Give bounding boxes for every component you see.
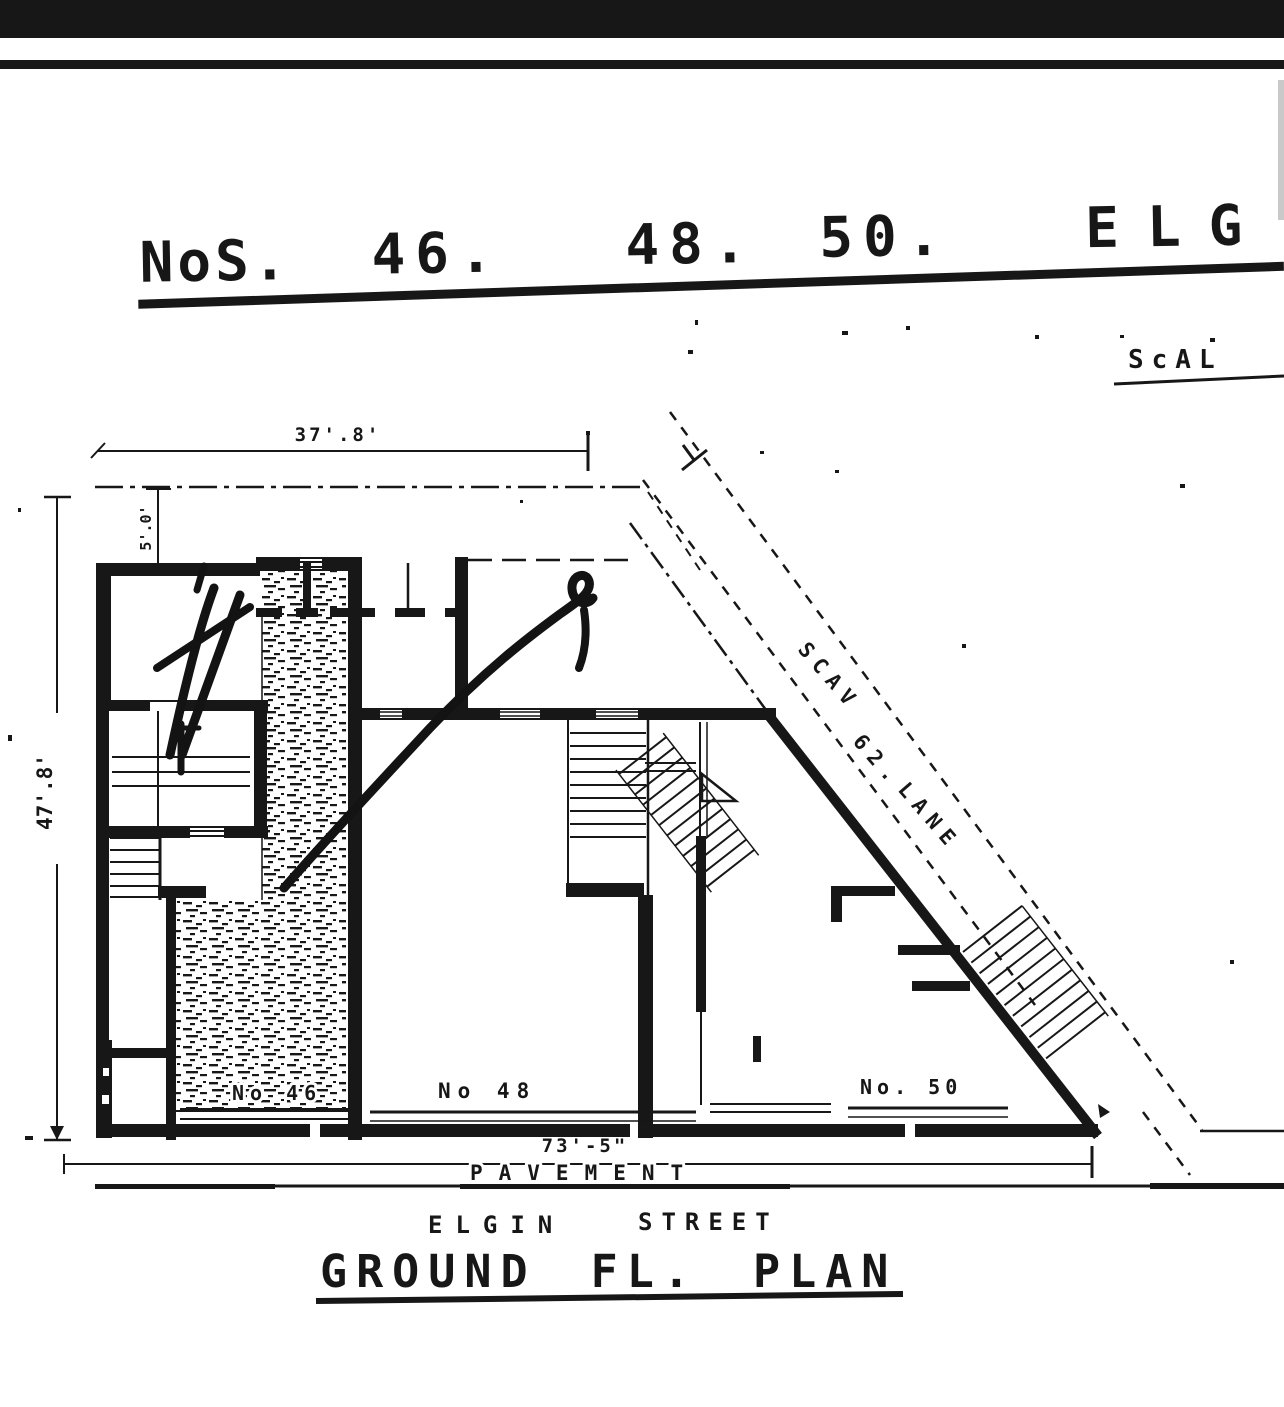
house-50-label: No. 50 [860,1075,962,1099]
scan-edge-top-line [0,60,1284,69]
lane-dimension-tick [682,445,707,470]
lane-scav-62: SCAV 62. LANE [643,412,1284,1175]
party-wall-46-48 [348,557,362,1140]
pen-curve-tail [579,610,586,668]
title-number-50: 50. [819,204,951,271]
stair-direction-arrow [1098,1104,1110,1118]
front-wall [96,1124,1098,1137]
house-46-label: No 46 [232,1081,322,1105]
scanned-plan-page: NoS. 46. 48. 50. ELG ScAL 37'.8' 5'.0' 4… [0,0,1284,1407]
pavement-label: PAVEMENT [470,1161,699,1185]
house-48-label: No 48 [438,1079,536,1103]
street-name-elgin: ELGIN [428,1211,565,1239]
lot-boundary-lines [95,445,766,710]
stair-48 [566,720,648,900]
building-48: No 48 [348,557,776,1138]
stair-46 [110,838,160,900]
lane-label-scav: SCAV [793,638,865,716]
lane-centre-dashed-line [643,480,1190,1175]
title-street-partial: ELG [1085,193,1271,261]
street-front: PAVEMENT ELGIN STREET [95,1124,1284,1239]
scale-text-partial: ScAL [1128,345,1223,375]
plan-caption-block: GROUND FL. PLAN [316,1245,903,1301]
lane-label-lane: LANE [893,778,965,856]
title-number-48: 48. [625,211,757,278]
dimension-left-47-8: 47'.8' [33,497,71,1140]
building-50: No. 50 [710,886,1008,1117]
title-number-46: 46. [371,220,503,287]
dimension-setback-value: 5'.0' [137,505,155,550]
scan-edge-right-smudge [1278,80,1284,220]
street-name-street: STREET [638,1208,779,1236]
scale-underline [1114,376,1284,384]
lane-label-62: 62. [848,730,907,792]
dimension-setback-5-0: 5'.0' [137,489,171,566]
scale-note: ScAL [1114,345,1284,384]
dimension-top-37-8: 37'.8' [91,424,588,471]
dimension-left-value: 47'.8' [33,754,57,830]
dimension-top-value: 37'.8' [295,424,382,446]
lane-stair-upper [616,733,759,892]
title-block: NoS. 46. 48. 50. ELG [137,193,1284,309]
title-prefix: NoS. [139,228,291,296]
scan-edge-top-bar [0,0,1284,38]
plan-caption: GROUND FL. PLAN [320,1245,897,1298]
lane-far-dashed-line [670,412,1202,1130]
floor-plan-drawing: NoS. 46. 48. 50. ELG ScAL 37'.8' 5'.0' 4… [0,0,1284,1407]
dimension-bottom-value: 73'-5" [542,1135,629,1157]
